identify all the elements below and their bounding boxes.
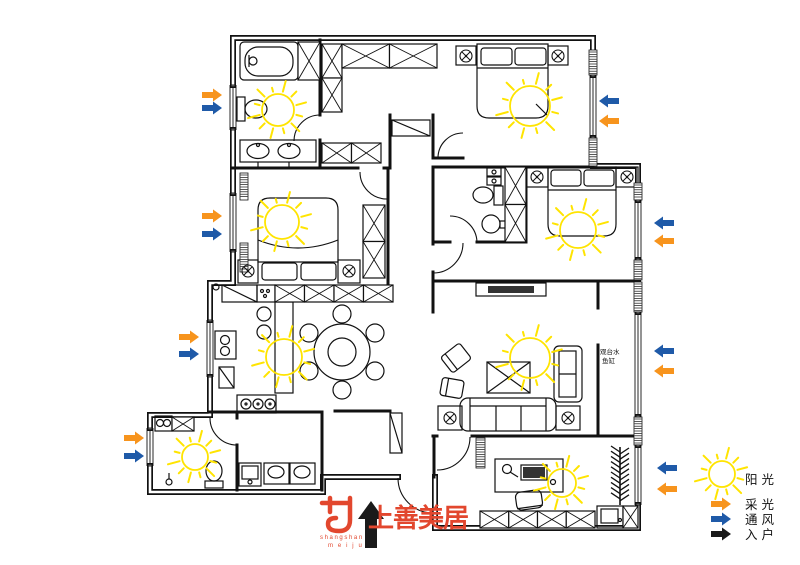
hatched-wall: [589, 138, 597, 166]
daylight-arrow-icon: [179, 331, 199, 344]
ventilation-arrow-icon: [654, 217, 674, 230]
bathroom-door-arc: [294, 115, 320, 141]
hatched-wall: [476, 438, 485, 468]
hatch-walls: [240, 50, 642, 468]
logo-latin-bottom: m e i j u: [328, 543, 363, 549]
hall-door-leaf: [390, 413, 402, 453]
wardrobe: [480, 511, 595, 528]
legend-label-entry: 入户: [745, 527, 778, 542]
study-door-arc: [437, 437, 470, 470]
desk: [495, 459, 563, 492]
legend-label-sunshine: 阳光: [745, 473, 778, 487]
side-tables: [438, 406, 580, 430]
window: [230, 193, 236, 252]
hatched-wall: [634, 260, 642, 280]
daylight-arrow-icon: [124, 432, 144, 445]
sun-icon: [168, 431, 220, 482]
plant-pot-icon: [444, 412, 456, 424]
daylight-arrow-icon: [202, 89, 222, 102]
armchair: [440, 377, 465, 399]
plant-pot-icon: [460, 50, 472, 62]
dining-chair: [366, 324, 384, 342]
wardrobe: [623, 506, 638, 528]
ventilation-arrow-icon: [202, 228, 222, 241]
dresser: [392, 120, 430, 136]
ensuite-door-arc: [450, 216, 477, 242]
ventilation-arrow-icon: [711, 513, 731, 526]
ventilation-arrow-icon: [599, 95, 619, 108]
bathtub: [240, 42, 298, 80]
loveseat: [554, 346, 582, 402]
ventilation-arrow-icon: [124, 450, 144, 463]
wardrobe: [342, 44, 437, 68]
plant-pot-icon: [343, 265, 355, 277]
bed-top-right: [456, 44, 568, 118]
dining-chair: [300, 362, 318, 380]
daylight-arrow-icon: [654, 235, 674, 248]
tall-plant-icon: [611, 446, 629, 505]
hatched-wall: [589, 50, 597, 75]
legend-sun-icon: [695, 448, 747, 499]
utility-door-arc: [210, 418, 237, 445]
window: [147, 428, 153, 466]
wardrobe: [363, 205, 385, 278]
ensuite-fixtures: [473, 168, 506, 233]
window: [635, 312, 641, 417]
window: [590, 75, 596, 138]
balcony-note: 观台水 鱼缸: [600, 347, 620, 365]
plant-pot-icon: [562, 412, 574, 424]
legend-label-ventilation: 通风: [745, 513, 778, 527]
window: [635, 200, 641, 260]
legend-label-daylight: 采光: [745, 498, 778, 512]
entry-arrow-icon: [711, 528, 731, 541]
legend: 阳光 采光 通风 入户: [695, 448, 778, 542]
plant-pot-icon: [621, 171, 633, 183]
wardrobe: [172, 417, 194, 431]
ventilation-arrow-icon: [179, 348, 199, 361]
window: [207, 320, 213, 377]
sofa: [460, 398, 556, 431]
interior-walls: [210, 40, 638, 490]
bedroom-left-door-arc: [360, 172, 387, 199]
hatched-wall: [634, 417, 642, 445]
av-cabinet: [597, 506, 623, 528]
sun-icon: [496, 325, 562, 390]
balcony-note-line1: 观台水: [600, 347, 620, 356]
logo-latin-top: shangshan: [320, 535, 364, 541]
wardrobe: [298, 42, 320, 80]
kitchen-sink: [215, 331, 236, 388]
window: [230, 85, 236, 130]
bed-middle-left: [238, 198, 360, 283]
window: [635, 445, 641, 505]
sun-icon: [496, 73, 562, 138]
hatched-wall: [240, 173, 248, 200]
dining-chair: [333, 381, 351, 399]
daylight-arrow-icon: [711, 498, 731, 511]
tv-unit: [476, 283, 546, 296]
sun-icon: [546, 199, 608, 260]
logo-cjk-text: 上善美居: [368, 503, 468, 533]
dining-chair: [366, 362, 384, 380]
ventilation-arrow-icon: [202, 102, 222, 115]
daylight-arrow-icon: [657, 483, 677, 496]
daylight-arrow-icon: [599, 115, 619, 128]
daylight-arrow-icon: [654, 365, 674, 378]
plant-pot-icon: [552, 50, 564, 62]
floor-plan-canvas: 观台水 鱼缸 阳光 采光 通风 入户 上善美居 shangshan m e i …: [0, 0, 800, 565]
fixtures: [155, 42, 638, 528]
plant-pot-icon: [531, 171, 543, 183]
legend-icons: [695, 448, 747, 541]
ventilation-arrow-icon: [657, 462, 677, 475]
wardrobe: [322, 44, 342, 112]
walls: [150, 38, 638, 528]
ventilation-arrow-icon: [654, 345, 674, 358]
master-suite-door-arc: [433, 243, 463, 273]
floor-plan: 观台水 鱼缸 阳光 采光 通风 入户 上善美居 shangshan m e i …: [0, 0, 800, 565]
balcony-note-line2: 鱼缸: [602, 356, 616, 365]
exterior-wall-core: [150, 38, 638, 528]
sun-icon: [248, 81, 306, 138]
dining-chair: [333, 305, 351, 323]
double-sink-counter: [240, 140, 316, 167]
wardrobe: [505, 167, 526, 242]
daylight-arrow-icon: [202, 210, 222, 223]
hatched-wall: [634, 183, 642, 200]
wardrobe: [322, 143, 381, 163]
logo: 上善美居 shangshan m e i j u: [320, 498, 468, 549]
bedroom-top-door-arc: [438, 133, 463, 158]
wardrobe: [275, 285, 393, 302]
armchair: [440, 343, 471, 374]
hatched-wall: [634, 282, 642, 312]
cooktop: [237, 395, 276, 413]
sun-icon: [251, 192, 311, 251]
logo-mark-icon: [322, 498, 350, 531]
